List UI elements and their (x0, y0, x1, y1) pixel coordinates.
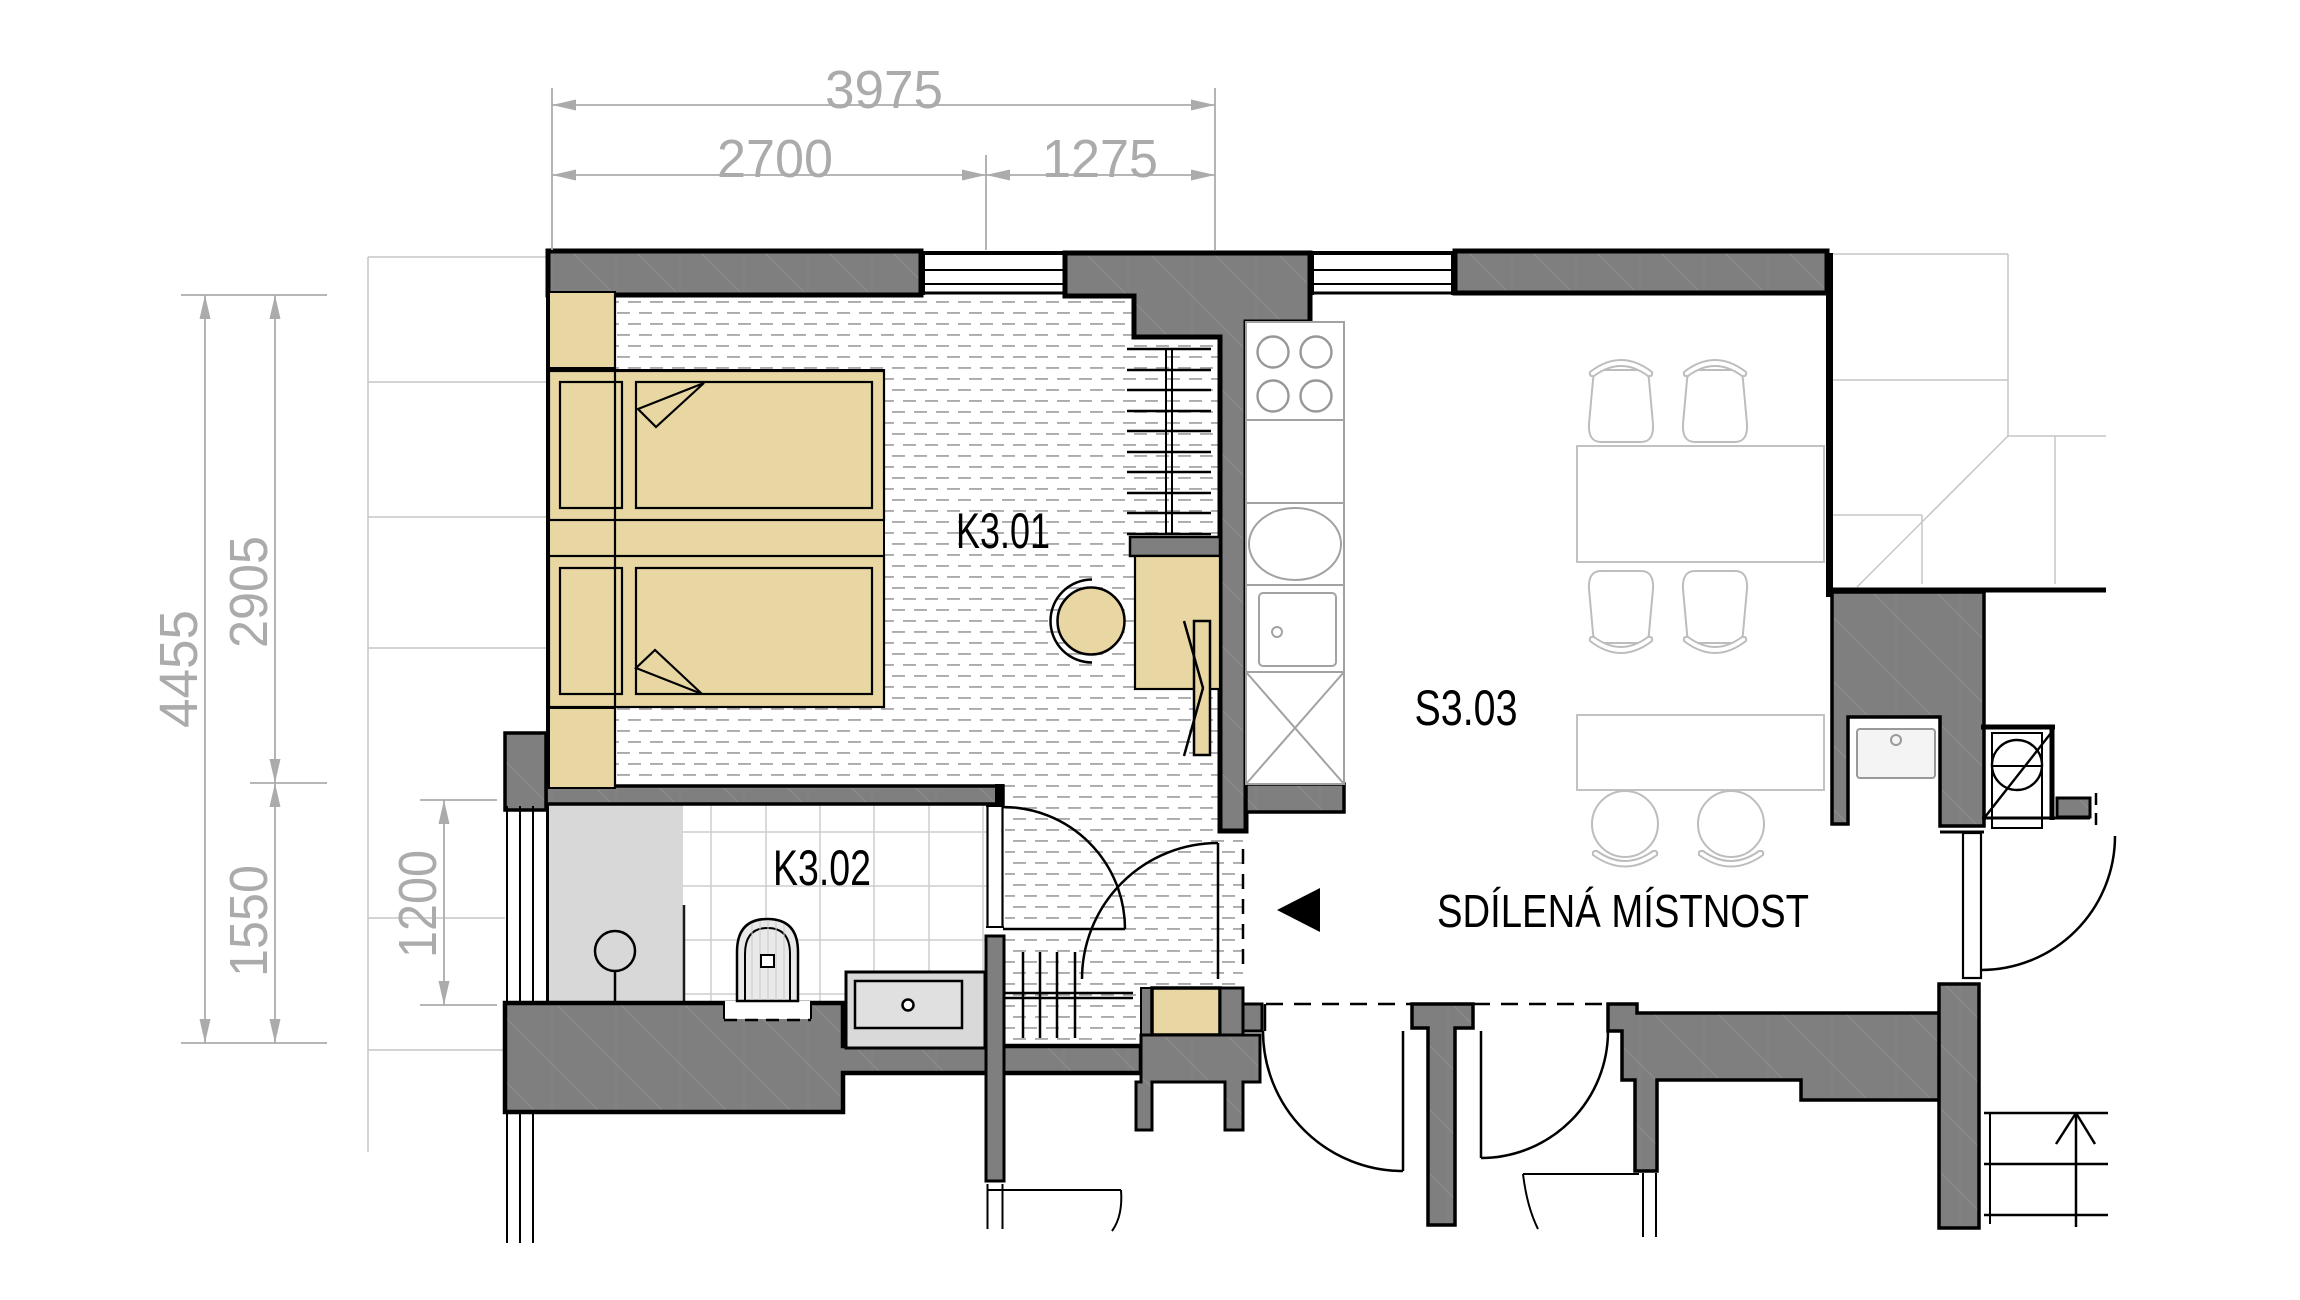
svg-text:2905: 2905 (219, 536, 279, 648)
svg-text:1550: 1550 (219, 865, 279, 977)
svg-text:3975: 3975 (825, 60, 943, 120)
svg-text:1200: 1200 (388, 850, 448, 958)
svg-text:4455: 4455 (149, 610, 209, 728)
svg-text:S3.03: S3.03 (1415, 680, 1518, 736)
svg-text:SDÍLENÁ MÍSTNOST: SDÍLENÁ MÍSTNOST (1437, 885, 1809, 937)
svg-text:1275: 1275 (1042, 129, 1158, 189)
svg-text:K3.01: K3.01 (956, 503, 1050, 559)
svg-text:2700: 2700 (717, 129, 833, 189)
svg-text:K3.02: K3.02 (773, 840, 871, 896)
